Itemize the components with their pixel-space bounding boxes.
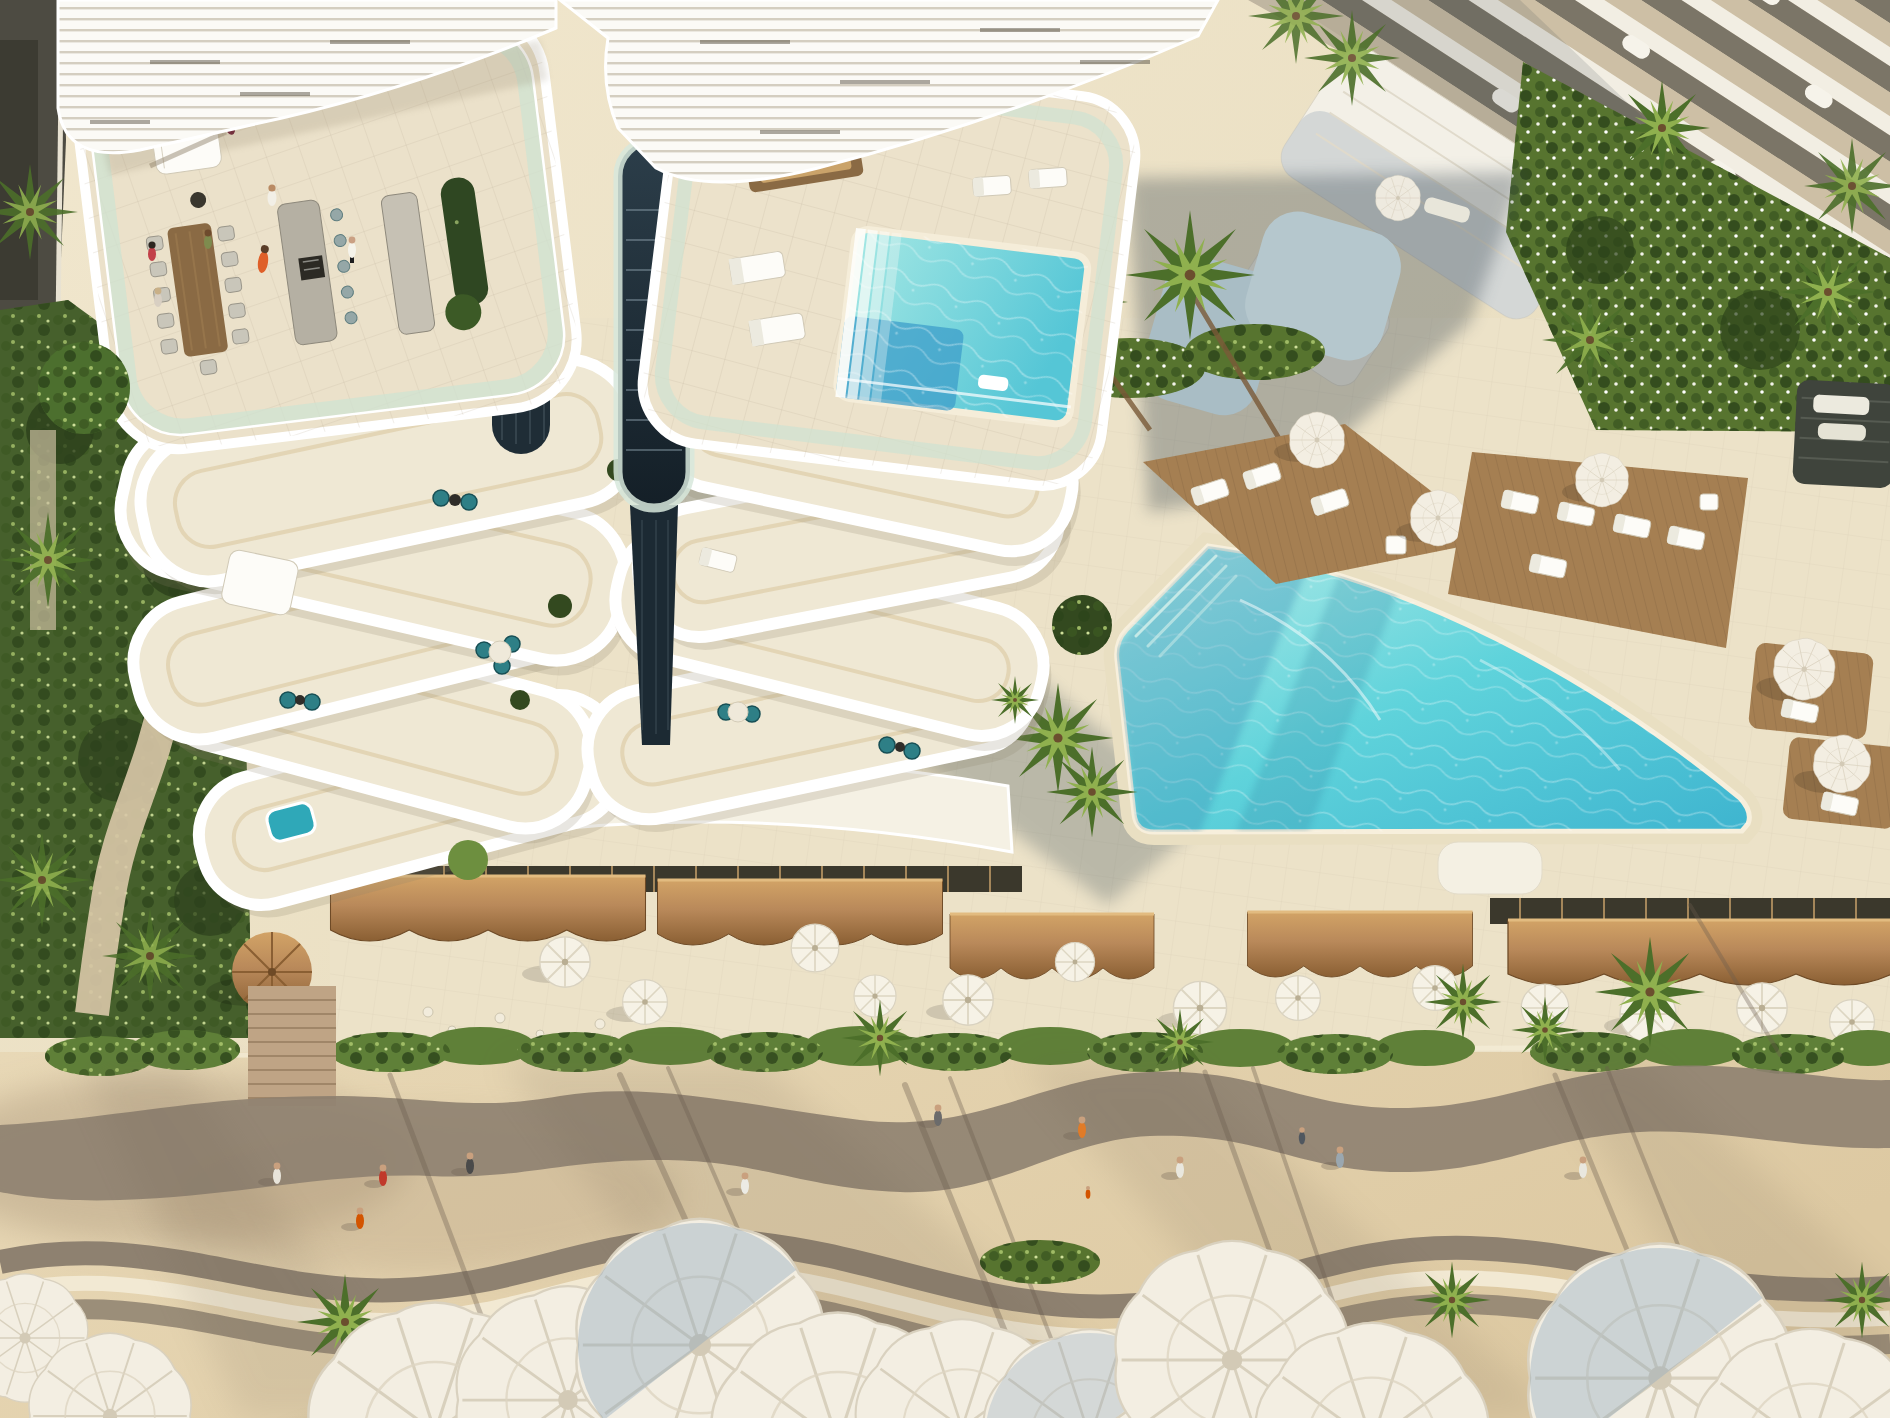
scene-canvas [0, 0, 1890, 1418]
paver-walkway [248, 986, 336, 1106]
resort-aerial-render [0, 0, 1890, 1418]
terrace-corner-tree-texture [38, 342, 130, 434]
base-shrub [448, 840, 488, 880]
rooftop-pool [835, 228, 1089, 425]
garden-pavilion [1792, 379, 1890, 488]
